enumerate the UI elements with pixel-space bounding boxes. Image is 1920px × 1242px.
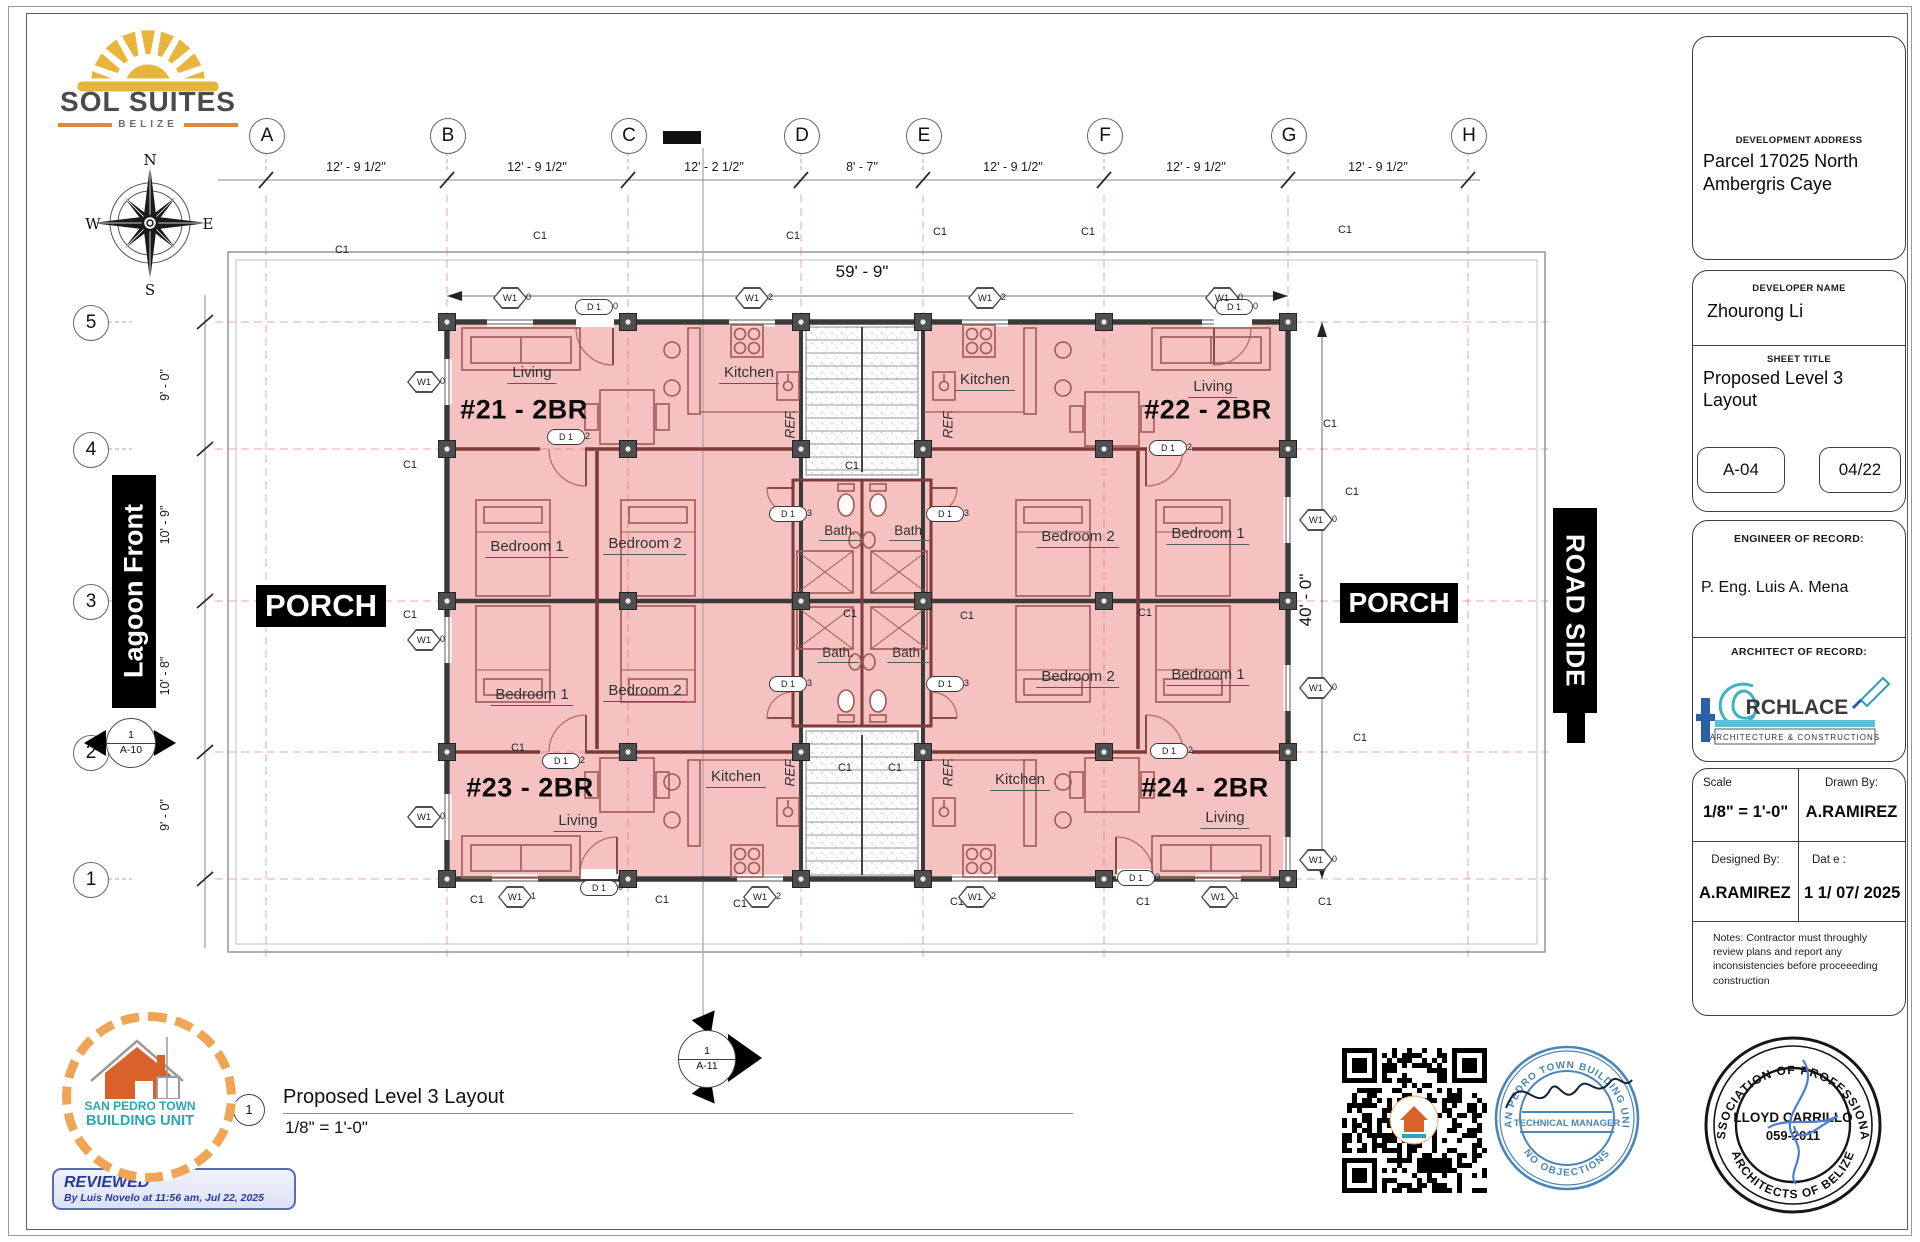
window-marker-label: W1 [735,287,769,309]
grid-col-dim: 12' - 9 1/2" [983,160,1043,174]
grid-row-dim: 9' - 0" [158,369,172,401]
road-side-banner-stem [1567,711,1585,743]
window-marker-tag: 0 [1332,854,1337,864]
window-marker-label: W1 [958,886,992,908]
section-left-sheet: A-10 [120,745,142,757]
hexagon-icon: W1 [407,629,441,651]
hexagon-icon: W1 [1299,849,1333,871]
window-marker: W12 [958,886,992,908]
room-label-kitchen: Kitchen [990,771,1050,791]
hexagon-icon: W1 [493,287,527,309]
unit-label: #23 - 2BR [466,773,594,804]
door-marker: D 13 [769,506,807,522]
titleblock-address-box: DEVELOPMENT ADDRESS Parcel 17025 North A… [1692,36,1906,260]
hexagon-icon: W1 [1201,886,1235,908]
room-label-kitchen: Kitchen [719,364,779,384]
window-marker-tag: 0 [440,634,445,644]
grid-row-dim: 10' - 8" [158,657,172,696]
column-marker: C1 [533,230,547,242]
room-label-bed2: Bedroom 2 [1036,668,1119,688]
door-marker-label: D 1 [1129,873,1143,883]
window-marker: W10 [407,629,441,651]
hexagon-icon: W1 [407,806,441,828]
room-label-ref: REF. [783,757,798,786]
door-marker-tag: 0 [1253,301,1258,311]
architect-label: ARCHITECT OF RECORD: [1693,646,1905,658]
door-marker: D 10 [575,299,613,315]
hexagon-icon: W1 [735,287,769,309]
door-marker: D 12 [547,429,585,445]
building-unit-house-icon [71,1029,209,1099]
window-marker-tag: 0 [1332,682,1337,692]
view-number: 1 [245,1103,252,1117]
door-marker-tag: 2 [580,755,585,765]
window-marker-label: W1 [1299,677,1333,699]
grid-col-dim: 12' - 9 1/2" [326,160,386,174]
architects-stamp: ASSOCIATION OF PROFESSIONAL ARCHITECTS O… [1698,1030,1888,1220]
engineer-label: ENGINEER OF RECORD: [1693,533,1905,545]
room-label-kitchen: Kitchen [706,768,766,788]
window-marker: W11 [498,886,532,908]
window-marker: W12 [743,886,777,908]
window-marker-label: W1 [498,886,532,908]
window-marker-tag: 1 [531,891,536,901]
grid-row-bubble: 5 [73,305,109,341]
date-value: 1 1/ 07/ 2025 [1798,866,1905,903]
architect-logo: RCHLACE ARCHITECTURE & CONSTRUCTIONS [1693,658,1905,754]
room-label-bath: Bath. [819,523,861,541]
view-title-underline [283,1113,1073,1114]
bu-stamp-band: TECHNICAL MANAGER [1514,1118,1621,1129]
developer-label: DEVELOPER NAME [1693,283,1905,294]
window-marker: W10 [1299,849,1333,871]
door-marker: D 12 [542,753,580,769]
column-marker: C1 [655,894,669,906]
door-marker-label: D 1 [559,432,573,442]
window-marker-tag: 0 [1332,514,1337,524]
engineer-value: P. Eng. Luis A. Mena [1693,545,1905,597]
grid-col-dim: 12' - 9 1/2" [1348,160,1408,174]
window-marker: W10 [407,806,441,828]
window-marker-label: W1 [407,629,441,651]
room-label-ref: REF. [783,409,798,438]
door-marker-tag: 3 [964,508,969,518]
window-marker: W11 [1201,886,1235,908]
hexagon-icon: W1 [743,886,777,908]
window-marker-tag: 2 [768,292,773,302]
hexagon-icon: W1 [1299,509,1333,531]
window-marker: W10 [1299,509,1333,531]
grid-row-bubble: 1 [73,862,109,898]
grid-col-dim: 12' - 2 1/2" [684,160,744,174]
column-marker: C1 [1136,896,1150,908]
door-marker-tag: 0 [1155,872,1160,882]
room-label-bed1: Bedroom 1 [1166,525,1249,545]
door-marker-tag: 2 [585,431,590,441]
sheet-title-label: SHEET TITLE [1693,354,1905,365]
sheet-title-value: Proposed Level 3 Layout [1693,365,1905,412]
column-marker: C1 [1138,607,1152,619]
column-marker: C1 [888,762,902,774]
window-marker-label: W1 [493,287,527,309]
sheet-revision: 04/22 [1819,447,1901,493]
building-unit-line1: SAN PEDRO TOWN [71,1099,209,1113]
room-label-ref: REF. [941,409,956,438]
door-marker: D 13 [926,506,964,522]
room-label-living: Living [507,364,556,384]
window-marker-label: W1 [1299,849,1333,871]
window-marker: W12 [968,287,1002,309]
window-marker: W10 [1299,677,1333,699]
door-marker-label: D 1 [781,679,795,689]
hexagon-icon: W1 [968,287,1002,309]
window-marker-label: W1 [1205,287,1239,309]
grid-row-bubble: 4 [73,432,109,468]
window-marker-tag: 0 [526,292,531,302]
grid-row-dim: 9' - 0" [158,799,172,831]
titleblock-developer-sheet-box: DEVELOPER NAME Zhourong Li SHEET TITLE P… [1692,270,1906,512]
door-marker-label: D 1 [1161,443,1175,453]
road-side-banner: ROAD SIDE [1553,508,1597,713]
archlace-logo-icon: RCHLACE ARCHITECTURE & CONSTRUCTIONS [1693,658,1905,754]
column-marker: C1 [960,610,974,622]
column-marker: C1 [403,459,417,471]
room-label-living: Living [1200,809,1249,829]
scale-value: 1/8" = 1'-0" [1693,789,1798,822]
grid-row-dim: 10' - 9" [158,506,172,545]
door-marker-label: D 1 [781,509,795,519]
window-marker-label: W1 [1201,886,1235,908]
door-marker-tag: 2 [1187,442,1192,452]
room-label-kitchen: Kitchen [955,371,1015,391]
section-bottom-num: 1 [704,1046,710,1058]
grid-col-bubble: B [430,118,466,154]
unit-label: #21 - 2BR [460,395,588,426]
door-marker-tag: 3 [964,678,969,688]
scale-label: Scale [1693,769,1798,789]
window-marker-label: W1 [1299,509,1333,531]
window-marker: W10 [407,371,441,393]
window-marker-label: W1 [407,371,441,393]
column-marker: C1 [1323,418,1337,430]
door-marker-tag: 0 [618,882,623,892]
drawn-by-label: Drawn By: [1798,769,1905,789]
door-marker: D 12 [1149,440,1187,456]
door-marker-label: D 1 [554,756,568,766]
door-marker-label: D 1 [592,883,606,893]
window-marker: W10 [1205,287,1239,309]
room-label-living: Living [553,812,602,832]
door-marker-label: D 1 [938,679,952,689]
door-marker: D 10 [580,880,618,896]
column-marker: C1 [470,894,484,906]
qr-code [1342,1048,1487,1193]
window-marker-label: W1 [407,806,441,828]
window-marker: W12 [735,287,769,309]
column-marker: C1 [1081,226,1095,238]
window-marker: W10 [493,287,527,309]
drawn-by-value: A.RAMIREZ [1798,789,1905,822]
column-marker: C1 [845,460,859,472]
column-marker: C1 [511,742,525,754]
door-marker-label: D 1 [1162,746,1176,756]
window-marker-tag: 2 [1001,292,1006,302]
window-marker-tag: 1 [1234,891,1239,901]
overall-width-dim: 59' - 9" [836,262,889,282]
building-unit-line2: BUILDING UNIT [71,1113,209,1129]
window-marker-tag: 2 [991,891,996,901]
address-value: Parcel 17025 North Ambergris Caye [1693,146,1905,195]
porch-left-banner: PORCH [256,585,386,627]
column-marker: C1 [1338,224,1352,236]
grid-col-bubble: D [784,118,820,154]
column-marker: C1 [786,230,800,242]
view-title: Proposed Level 3 Layout [283,1086,504,1109]
door-marker: D 12 [1150,743,1188,759]
grid-col-dim: 12' - 9 1/2" [507,160,567,174]
door-marker-tag: 2 [1188,745,1193,755]
room-label-living: Living [1188,378,1237,398]
window-marker-tag: 0 [440,376,445,386]
grid-col-bubble: F [1087,118,1123,154]
room-label-bed2: Bedroom 2 [603,682,686,702]
grid-col-bubble: E [906,118,942,154]
grid-col-dim: 12' - 9 1/2" [1166,160,1226,174]
column-marker: C1 [1353,732,1367,744]
room-label-bath: Bath. [817,645,859,663]
door-marker-label: D 1 [938,509,952,519]
column-marker: C1 [933,226,947,238]
room-label-bed2: Bedroom 2 [1036,528,1119,548]
address-label: DEVELOPMENT ADDRESS [1693,135,1905,146]
room-label-bath: Bath. [887,645,929,663]
door-marker: D 13 [769,676,807,692]
hexagon-icon: W1 [958,886,992,908]
grid-col-dim: 8' - 7" [846,160,878,174]
door-marker-tag: 3 [807,678,812,688]
archlace-sub: ARCHITECTURE & CONSTRUCTIONS [1710,733,1880,742]
window-marker-tag: 0 [440,811,445,821]
room-label-bed1: Bedroom 1 [1166,666,1249,686]
section-right-arrow-icon [154,730,176,756]
hexagon-icon: W1 [1299,677,1333,699]
archlace-name: RCHLACE [1746,696,1849,719]
reviewed-subtitle: By Luis Novelo at 11:56 am, Jul 22, 2025 [64,1192,284,1204]
room-label-bed1: Bedroom 1 [490,686,573,706]
window-marker-tag: 0 [1238,292,1243,302]
section-left-num: 1 [128,730,134,742]
hexagon-icon: W1 [407,371,441,393]
unit-label: #22 - 2BR [1144,395,1272,426]
window-marker-label: W1 [743,886,777,908]
view-scale: 1/8" = 1'-0" [285,1118,368,1138]
drawing-sheet: SOL SUITES BELIZE N S W E ABCDEFGH543211… [0,0,1920,1242]
room-label-ref: REF. [941,757,956,786]
hexagon-icon: W1 [1205,287,1239,309]
building-unit-stamp: SAN PEDRO TOWN BUILDING UNIT NO OBJECTIO… [1492,1038,1642,1200]
grid-row-bubble: 3 [73,584,109,620]
grid-col-bubble: G [1271,118,1307,154]
section-marker-bottom: 1 A-11 [666,1008,776,1108]
sheet-number: A-04 [1697,447,1785,493]
door-marker-tag: 0 [613,301,618,311]
unit-label: #24 - 2BR [1141,773,1269,804]
building-unit-logo: SAN PEDRO TOWN BUILDING UNIT [62,1012,236,1182]
column-marker: C1 [1318,896,1332,908]
titleblock-record-box: ENGINEER OF RECORD: P. Eng. Luis A. Mena… [1692,520,1906,762]
window-marker-tag: 2 [776,891,781,901]
column-marker: C1 [838,762,852,774]
grid-col-bubble: A [249,118,285,154]
section-bottom-sheet: A-11 [696,1061,717,1073]
designed-by-label: Designed By: [1693,842,1798,866]
window-marker-label: W1 [968,287,1002,309]
titleblock-scale-box: Scale 1/8" = 1'-0" Drawn By: A.RAMIREZ D… [1692,768,1906,1016]
lagoon-front-banner: Lagoon Front [112,475,156,708]
section-marker-left: 1 A-10 [82,716,178,768]
door-marker-label: D 1 [587,302,601,312]
room-label-bed2: Bedroom 2 [603,535,686,555]
porch-right-banner: PORCH [1340,583,1458,623]
developer-value: Zhourong Li [1693,294,1905,323]
view-number-bubble: 1 [233,1094,265,1126]
grid-col-bubble: C [611,118,647,154]
grid-col-bubble: H [1451,118,1487,154]
door-marker: D 10 [1117,870,1155,886]
door-marker-tag: 3 [807,508,812,518]
section-left-arrow-icon [84,730,106,756]
column-marker: C1 [335,244,349,256]
column-marker: C1 [843,608,857,620]
notes-text: Notes: Contractor must throughly review … [1713,931,1889,988]
room-label-bath: Bath. [889,523,931,541]
hexagon-icon: W1 [498,886,532,908]
overall-depth-dim: 40' - 0" [1296,574,1316,627]
designed-by-value: A.RAMIREZ [1693,866,1798,903]
column-marker: C1 [403,609,417,621]
door-marker: D 13 [926,676,964,692]
room-label-bed1: Bedroom 1 [485,538,568,558]
date-label: Dat e : [1798,842,1905,866]
column-marker: C1 [1345,486,1359,498]
